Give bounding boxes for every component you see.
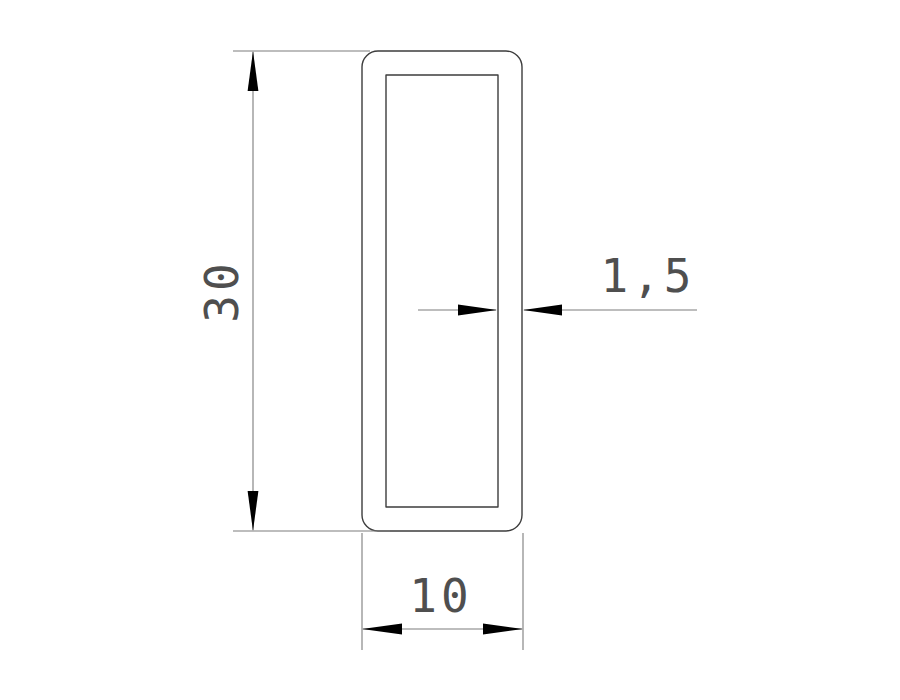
thickness-dim-label: 1,5 <box>600 249 695 303</box>
thickness-arrow-left-icon <box>523 305 562 316</box>
width-arrow-right-icon <box>483 624 523 635</box>
width-dim-label: 10 <box>409 569 472 623</box>
drawing-canvas: 30 1,5 10 <box>0 0 900 700</box>
cad-drawing: 30 1,5 10 <box>0 0 900 700</box>
thickness-arrow-right-icon <box>458 305 497 316</box>
height-arrow-up-icon <box>248 51 259 91</box>
inner-profile-outline <box>386 75 498 507</box>
width-arrow-left-icon <box>362 624 402 635</box>
height-dim-label: 30 <box>195 259 249 322</box>
height-arrow-down-icon <box>248 491 259 531</box>
